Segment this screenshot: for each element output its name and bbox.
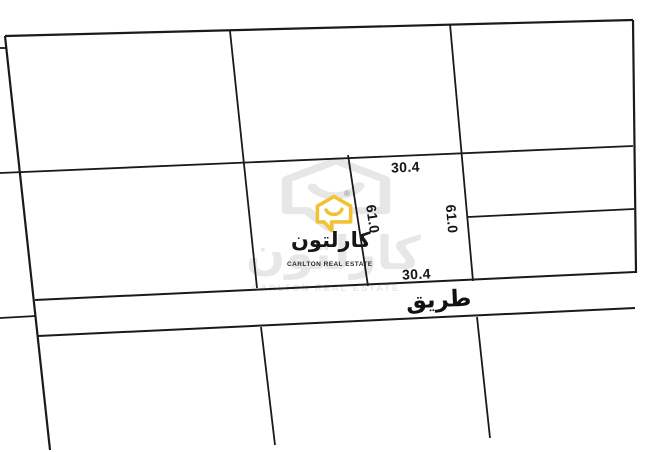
below-road-divider-right xyxy=(477,317,490,438)
dimension-top-width: 30.4 xyxy=(391,158,421,175)
dimension-bottom-width: 30.4 xyxy=(402,265,432,282)
road-top-edge xyxy=(35,272,635,300)
right-boundary xyxy=(633,20,636,273)
right-column-divider xyxy=(468,209,634,217)
dimension-right-length: 61.0 xyxy=(443,202,462,235)
plot-lines xyxy=(0,0,668,452)
top-boundary xyxy=(5,20,633,36)
road-bottom-edge xyxy=(38,308,635,336)
left-road-stub xyxy=(0,316,36,318)
road-name-label: طريق xyxy=(405,285,471,314)
divider-a xyxy=(230,31,257,288)
below-road-divider-left xyxy=(261,327,275,445)
upper-cross-line xyxy=(0,146,633,173)
plot-map-canvas: كارلتون CARLTON REAL ESTATE ® كارلتون CA… xyxy=(0,0,668,452)
left-boundary xyxy=(5,36,50,450)
